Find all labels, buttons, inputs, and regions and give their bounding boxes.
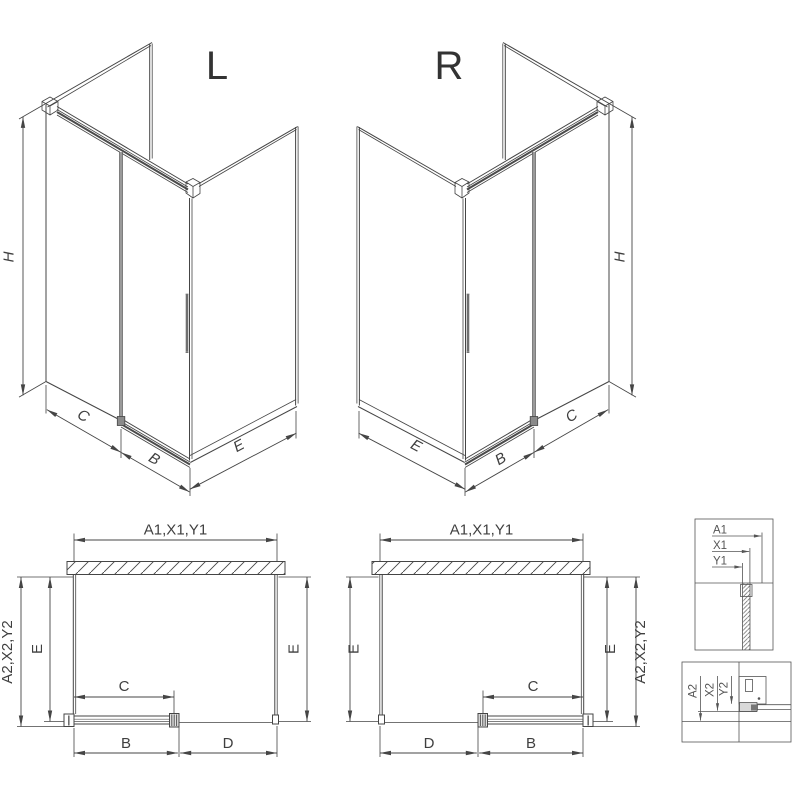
dim-label-e-left: E (29, 644, 46, 654)
dim-label-d: D (424, 735, 435, 752)
dim-label-e-right: E (602, 644, 619, 654)
detail-bottom-callout: A2 X2 Y2 (682, 662, 791, 742)
detail-frame (695, 519, 773, 650)
detail-top-callout: A1 X1 Y1 (695, 519, 773, 650)
right-side-panel (190, 127, 298, 463)
dim-label-h: H (1, 251, 18, 262)
seal-insert (751, 705, 758, 711)
wall-hatch-left (67, 562, 285, 575)
dim-label-b: B (146, 449, 163, 469)
iso-right-linework (357, 43, 636, 497)
dim-label-a2x2y2: A2,X2,Y2 (0, 620, 16, 683)
wall-profile-hatch (743, 583, 751, 650)
dim-label-a1x1y1: A1,X1,Y1 (450, 522, 513, 539)
dim-label-b: B (526, 735, 536, 752)
iso-left-linework (19, 43, 298, 497)
dim-label-c: C (119, 678, 130, 695)
sliding-door (64, 714, 273, 728)
technical-drawing-sheet: L H C B E R H E B C (0, 0, 800, 800)
dim-label-h: H (612, 251, 629, 262)
dim-label-e: E (230, 436, 248, 456)
dim-label-b: B (492, 449, 509, 469)
dim-label-c: C (528, 678, 539, 695)
detail-label-a1: A1 (713, 525, 727, 537)
door-handle (186, 294, 189, 352)
dim-label-e-right: E (286, 644, 303, 654)
plan-right-labels: A1,X1,Y1 E E A2,X2,Y2 C D B (346, 522, 650, 753)
detail-label-x1: X1 (713, 540, 727, 552)
detail-label-y2: Y2 (719, 682, 731, 696)
detail-label-a2: A2 (688, 684, 700, 698)
dim-label-e-left: E (346, 644, 363, 654)
dim-label-c: C (74, 406, 92, 426)
glass-section (757, 705, 791, 710)
detail-label-x2: X2 (705, 683, 717, 697)
extension-lines (19, 104, 296, 496)
dim-label-a1x1y1: A1,X1,Y1 (144, 522, 207, 539)
view-title-left: L (206, 44, 228, 88)
back-panel-edge (45, 43, 152, 161)
dim-label-e: E (408, 436, 426, 456)
corner-cap (186, 179, 200, 199)
detail-frame (682, 662, 791, 742)
dim-label-c: C (563, 406, 581, 426)
wall-hatch-right (372, 562, 590, 575)
front-right-edge (190, 198, 193, 461)
plan-left-labels: A1,X1,Y1 A2,X2,Y2 E E C B D (0, 522, 303, 753)
dim-label-b: B (121, 735, 131, 752)
dim-label-a2x2y2: A2,X2,Y2 (632, 620, 649, 683)
door-seam (120, 152, 123, 420)
iso-left-labels: L H C B E (1, 44, 249, 469)
detail-label-y1: Y1 (713, 556, 727, 568)
view-title-right: R (435, 44, 464, 88)
drawing-canvas: L H C B E R H E B C (0, 0, 800, 800)
wall-cap (42, 97, 58, 115)
dim-label-d: D (223, 735, 234, 752)
glass-panels (73, 575, 278, 725)
